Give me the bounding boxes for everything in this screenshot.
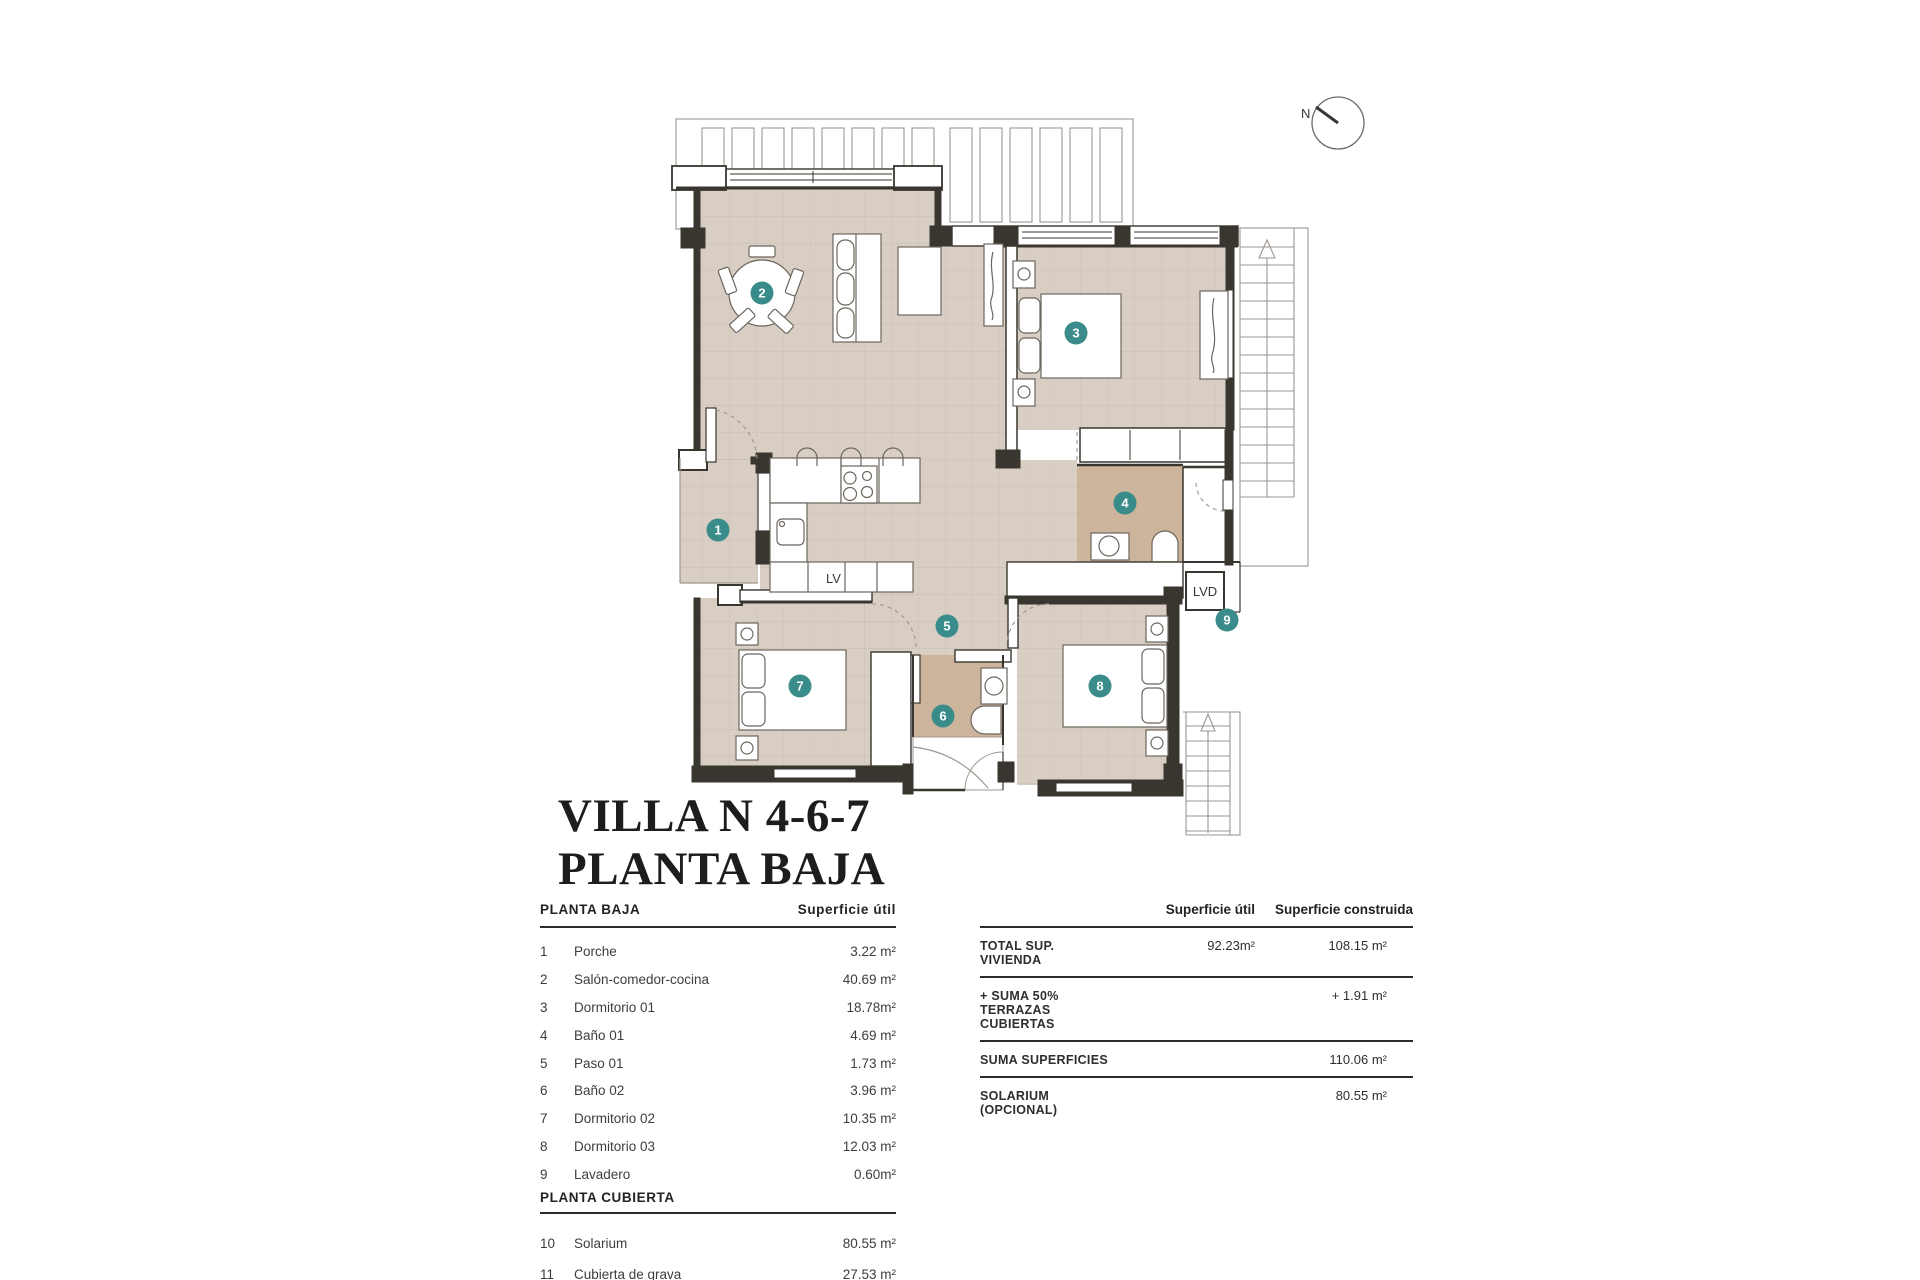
- svg-text:6: 6: [939, 709, 946, 724]
- summary-row: + SUMA 50% TERRAZAS CUBIERTAS + 1.91 m²: [980, 978, 1413, 1042]
- summary-header-row: Superficie útil Superficie construida: [980, 902, 1413, 928]
- room-row: 1Porche3.22 m²: [540, 938, 896, 966]
- nightstand-icon: [736, 736, 758, 760]
- room-badge: 7: [789, 675, 812, 698]
- svg-text:2: 2: [758, 286, 765, 301]
- room-row: 10Solarium80.55 m²: [540, 1228, 896, 1259]
- section-header: PLANTA BAJA: [540, 902, 640, 917]
- pillow-icon: [1019, 338, 1040, 373]
- compass-north-label: N: [1301, 106, 1310, 121]
- room-row: 2Salón-comedor-cocina40.69 m²: [540, 966, 896, 994]
- room-badge: 5: [936, 615, 959, 638]
- hob-icon: [841, 466, 877, 503]
- room-badge: 6: [932, 705, 955, 728]
- summary-row: TOTAL SUP. VIVIENDA 92.23m² 108.15 m²: [980, 928, 1413, 978]
- kitchen-sink-icon: [777, 519, 804, 545]
- summary-row: SOLARIUM (OPCIONAL) 80.55 m²: [980, 1078, 1413, 1126]
- svg-text:9: 9: [1223, 613, 1230, 628]
- nightstand-icon: [736, 623, 758, 645]
- svg-text:1: 1: [714, 523, 721, 538]
- room-row: 7Dormitorio 0210.35 m²: [540, 1105, 896, 1133]
- room-badge: 8: [1089, 675, 1112, 698]
- room-row: 11Cubierta de grava27.53 m²: [540, 1259, 896, 1280]
- exterior-stairs-right: [1240, 228, 1308, 566]
- pillow-icon: [742, 654, 765, 688]
- toilet-icon: [1152, 531, 1178, 561]
- plan-title-line1: VILLA N 4-6-7: [558, 790, 885, 843]
- pillow-icon: [742, 692, 765, 726]
- room-row: 8Dormitorio 0312.03 m²: [540, 1132, 896, 1160]
- plan-title-line2: PLANTA BAJA: [558, 843, 885, 896]
- summary-row: SUMA SUPERFICIES 110.06 m²: [980, 1042, 1413, 1078]
- room-row: 5Paso 011.73 m²: [540, 1049, 896, 1077]
- room-badge: 9: [1216, 609, 1239, 632]
- svg-text:5: 5: [943, 619, 950, 634]
- room-badge: 1: [707, 519, 730, 542]
- pillow-icon: [1142, 649, 1164, 684]
- dishwasher-label: LV: [826, 571, 841, 586]
- room-badge: 3: [1065, 322, 1088, 345]
- exterior-stairs-bottom: [1183, 712, 1240, 835]
- floorplan-page: N: [0, 0, 1920, 1280]
- col-header-construida: Superficie construida: [1255, 902, 1413, 917]
- surface-summary-table: Superficie útil Superficie construida TO…: [980, 902, 1413, 1126]
- room-row: 4Baño 014.69 m²: [540, 1021, 896, 1049]
- col-header-util: Superficie útil: [1115, 902, 1255, 917]
- toilet-icon: [971, 706, 1001, 734]
- room-row: 9Lavadero0.60m²: [540, 1160, 896, 1188]
- nightstand-icon: [1013, 261, 1035, 288]
- nightstand-icon: [1146, 730, 1168, 756]
- value-column-header: Superficie útil: [798, 902, 896, 917]
- svg-text:4: 4: [1121, 496, 1129, 511]
- section-header: PLANTA CUBIERTA: [540, 1190, 896, 1214]
- room-schedule-header: PLANTA BAJA Superficie útil: [540, 902, 896, 928]
- coffee-table-icon: [898, 247, 941, 315]
- chair-icon: [749, 246, 775, 257]
- plan-title: VILLA N 4-6-7 PLANTA BAJA: [558, 790, 885, 895]
- north-compass: N: [1301, 97, 1364, 149]
- room-badge: 2: [751, 282, 774, 305]
- room-badge: 4: [1114, 492, 1137, 515]
- room-schedule-table: PLANTA BAJA Superficie útil 1Porche3.22 …: [540, 902, 896, 1280]
- laundry-label: LVD: [1193, 584, 1217, 599]
- shower-bath02: [913, 737, 1003, 790]
- room-row: 3Dormitorio 0118.78m²: [540, 994, 896, 1022]
- room-row: 6Baño 023.96 m²: [540, 1077, 896, 1105]
- svg-text:3: 3: [1072, 326, 1079, 341]
- svg-text:7: 7: [796, 679, 803, 694]
- nightstand-icon: [1146, 616, 1168, 642]
- pillow-icon: [1019, 298, 1040, 333]
- pillow-icon: [1142, 688, 1164, 723]
- floorplan-drawing: N: [0, 0, 1920, 1280]
- svg-text:8: 8: [1096, 679, 1103, 694]
- nightstand-icon: [1013, 379, 1035, 406]
